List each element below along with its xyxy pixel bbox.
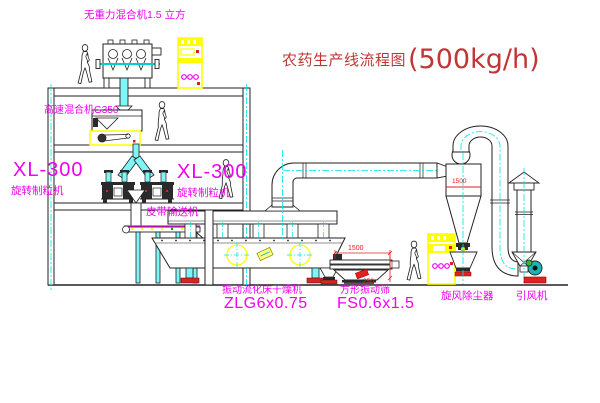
title-text: 农药生产线流程图 [282,49,406,70]
gravity-free-mixer [96,40,161,110]
label-cyclone: 旋风除尘器 [441,291,494,302]
label-granulator-right-name: 旋转制粒机 [177,188,230,199]
label-granulator-left-model: XL-300 [13,160,84,180]
label-granulator-left-name: 旋转制粒机 [11,186,64,197]
building-column [205,210,213,285]
label-high-speed-mixer: 高速混合机G350 [44,106,118,116]
worker-figure-roof [78,45,92,84]
granulator-right [140,170,174,203]
title-capacity: (500kg/h) [408,44,540,75]
dim-cyclone: 1500 [452,179,466,186]
dim-sifter-length: 1500 [348,245,364,252]
label-gravity-mixer: 无重力混合机1.5 立方 [84,10,186,21]
dim-sifter-height: 250 [363,279,374,286]
label-fan: 引风机 [516,291,548,302]
worker-figure-ground [407,241,421,280]
worker-figure-floor2 [155,102,169,141]
mixer-outlet-pipe [120,78,128,110]
control-cabinet-ground [428,234,455,284]
drawing-title: 农药生产线流程图 (500kg/h) [282,44,540,75]
label-belt-conveyor: 皮带输送机 [146,207,199,218]
flow-diagram-canvas: 农药生产线流程图 (500kg/h) 无重力混合机1.5 立方 高速混合机G35… [0,0,600,403]
label-dryer-model: ZLG6x0.75 [224,296,308,312]
control-cabinet-top [178,38,202,88]
label-sifter-model: FS0.6x1.5 [337,296,414,312]
label-granulator-right-model: XL-300 [177,162,248,182]
